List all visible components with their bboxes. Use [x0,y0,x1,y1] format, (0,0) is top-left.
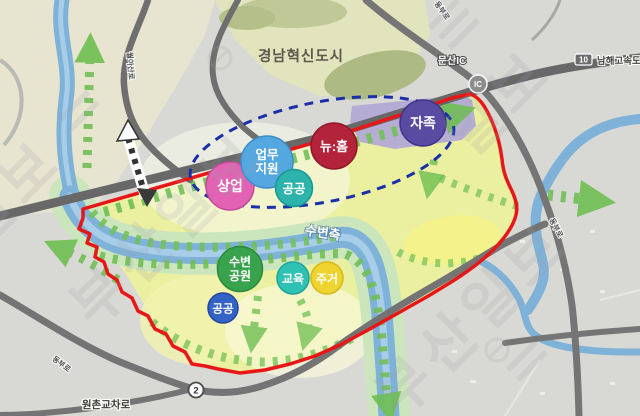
zone-residential-label: 주거 [316,271,338,286]
zone-new-home: 뉴:홈 [311,123,357,169]
zone-education-label: 교육 [282,271,304,286]
expressway-name-label: 남해고속도로 [597,55,640,67]
ic-name-label: 문산IC [438,54,466,67]
road-label-northwest: 월아산로 [125,52,137,80]
zone-residential: 주거 [311,262,343,294]
planning-map: 상업 업무 지원 공공 뉴:홈 자족 수변 공원 교육 [0,0,640,416]
map-canvas: 상업 업무 지원 공공 뉴:홈 자족 수변 공원 교육 [0,0,640,416]
zone-public-upper-label: 공공 [282,182,306,196]
zone-waterfront-park: 수변 공원 [218,247,263,292]
zone-education: 교육 [277,262,309,294]
route2-badge-label: 2 [193,386,198,397]
zone-new-home-label: 뉴:홈 [320,139,348,154]
city-label: 경남혁신도시 [258,47,344,65]
zone-public-lower: 공공 [208,293,238,323]
zone-waterfront-park-line1: 수변 [229,254,251,269]
intersection-label: 원촌교차로 [82,398,131,411]
zone-public-upper: 공공 [276,170,313,207]
expressway-number-label: 10 [579,56,588,65]
zone-waterfront-park-line2: 공원 [229,269,251,283]
zone-public-lower-label: 공공 [212,303,234,316]
